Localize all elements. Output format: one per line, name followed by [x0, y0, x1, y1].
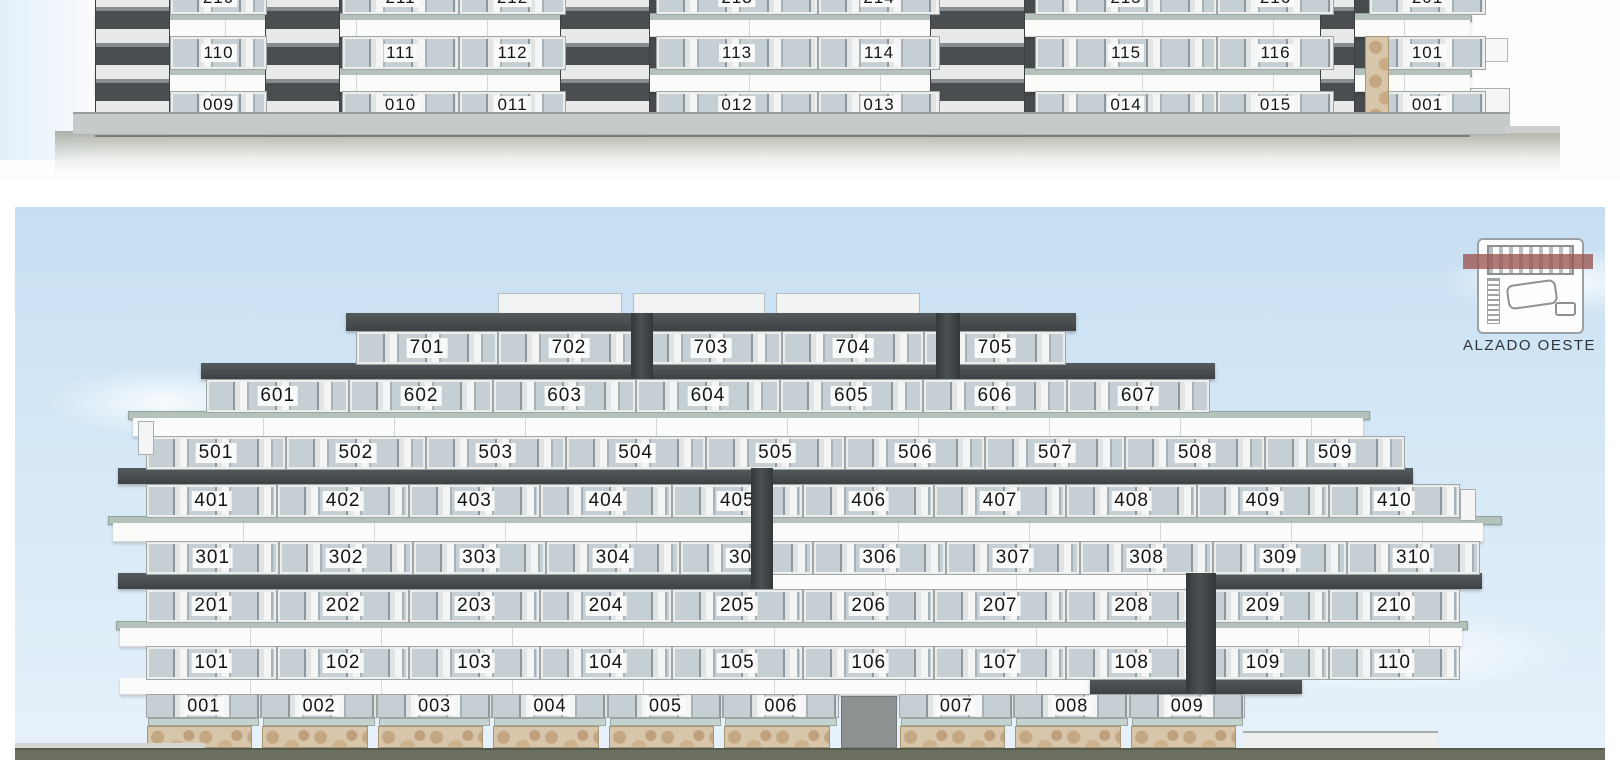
unit-cell: 111: [342, 36, 459, 70]
unit-cell: 114: [818, 36, 940, 70]
unit-label: 701: [407, 338, 448, 358]
chimney: [138, 421, 154, 455]
unit-label: 601: [257, 386, 298, 406]
unit-label: 105: [717, 653, 758, 673]
west-floor-row-1: 101102103104105106107108109110: [146, 646, 1460, 678]
facade-spacer: [267, 36, 342, 68]
unit-label: 404: [586, 491, 627, 511]
unit-cell: 206: [803, 589, 934, 623]
unit-label: 403: [454, 491, 495, 511]
glass-railing: [901, 718, 1012, 726]
ground-floor-window: 009: [1130, 694, 1245, 718]
unit-label: 107: [980, 653, 1021, 673]
unit-label: 104: [586, 653, 627, 673]
unit-cell: 212: [459, 0, 566, 15]
ground-floor-window: 001: [146, 694, 261, 718]
west-floor-row-4: 401402403404405406407408409410: [146, 484, 1460, 516]
unit-cell: 112: [459, 36, 566, 70]
unit-cell: 116: [1217, 36, 1334, 70]
unit-cell: 504: [566, 436, 706, 470]
unit-label: 503: [475, 443, 516, 463]
unit-cell: 406: [803, 484, 934, 518]
unit-label: 606: [974, 386, 1015, 406]
unit-label: 116: [1257, 44, 1293, 62]
unit-cell: 502: [286, 436, 426, 470]
unit-cell: 702: [498, 331, 640, 365]
vertical-pier: [936, 313, 960, 379]
stone-terrace-wall: [493, 726, 598, 748]
unit-cell: 503: [426, 436, 566, 470]
facade-spacer: [566, 36, 656, 68]
key-plan-highlight-band: [1463, 254, 1593, 269]
unit-cell: 214: [818, 0, 940, 15]
unit-cell: 408: [1066, 484, 1197, 518]
unit-cell: 402: [277, 484, 408, 518]
unit-cell: 201: [1369, 0, 1486, 15]
stone-terrace-wall: [378, 726, 483, 748]
unit-label: 210: [200, 0, 237, 7]
unit-cell: 006: [723, 694, 838, 748]
unit-cell: 310: [1347, 541, 1480, 575]
unit-label: 207: [980, 596, 1021, 616]
unit-cell: 008: [1014, 694, 1129, 748]
rooftop-structure: [633, 293, 765, 315]
unit-cell: 401: [146, 484, 277, 518]
stone-terrace-wall: [1015, 726, 1120, 748]
unit-cell: 002: [261, 694, 376, 748]
unit-cell: 602: [349, 379, 492, 413]
unit-cell: 507: [985, 436, 1125, 470]
unit-cell: 604: [636, 379, 779, 413]
stone-terrace-wall: [900, 726, 1005, 748]
upper-floor-row-2: 210211212213214215216201: [95, 0, 1470, 13]
unit-cell: 007: [899, 694, 1014, 748]
unit-label: 306: [859, 548, 900, 568]
vertical-pier: [631, 313, 653, 379]
unit-cell: 101: [146, 646, 277, 680]
unit-label: 308: [1126, 548, 1167, 568]
unit-label: 216: [1257, 0, 1294, 7]
unit-label: 202: [323, 596, 364, 616]
dark-band: [1190, 573, 1482, 589]
unit-cell: 213: [656, 0, 818, 15]
unit-label: 307: [993, 548, 1034, 568]
unit-label: 605: [831, 386, 872, 406]
dark-band: [118, 573, 755, 589]
unit-label: 110: [200, 44, 236, 62]
unit-cell: 309: [1213, 541, 1346, 575]
unit-label: 109: [1243, 653, 1284, 673]
unit-cell: 410: [1329, 484, 1460, 518]
unit-label: 108: [1111, 653, 1152, 673]
ground-floor-window: 003: [377, 694, 492, 718]
unit-cell: 210: [170, 0, 267, 15]
stone-terrace-wall: [1131, 726, 1236, 748]
chimney: [1460, 489, 1476, 521]
unit-label: 501: [196, 443, 237, 463]
balcony-fascia: [755, 573, 1190, 590]
unit-label: 407: [980, 491, 1021, 511]
unit-cell: 701: [356, 331, 498, 365]
balcony-fascia: [133, 418, 1363, 437]
key-plan-car: [1555, 302, 1576, 316]
unit-cell: 509: [1265, 436, 1405, 470]
unit-cell: 110: [1329, 646, 1460, 680]
building-entrance: [841, 696, 897, 748]
unit-cell: 110: [170, 36, 267, 70]
unit-label: 506: [895, 443, 936, 463]
glass-railing: [1132, 718, 1243, 726]
stone-terrace-wall: [262, 726, 367, 748]
unit-label: 702: [549, 338, 590, 358]
unit-label: 215: [1107, 0, 1144, 7]
unit-cell: 113: [656, 36, 818, 70]
ground-shading: [55, 131, 1560, 175]
unit-label: 006: [761, 697, 800, 716]
unit-cell: 108: [1066, 646, 1197, 680]
unit-cell: 105: [672, 646, 803, 680]
unit-label: 504: [615, 443, 656, 463]
glass-railing: [610, 718, 721, 726]
unit-cell: 505: [706, 436, 846, 470]
unit-label: 001: [184, 697, 223, 716]
unit-cell: 201: [146, 589, 277, 623]
unit-cell: 703: [640, 331, 782, 365]
unit-label: 103: [454, 653, 495, 673]
unit-cell: 407: [934, 484, 1065, 518]
unit-cell: 103: [409, 646, 540, 680]
ground-floor-window: 005: [608, 694, 723, 718]
unit-cell: 606: [923, 379, 1066, 413]
unit-cell: 302: [279, 541, 412, 575]
unit-cell: 216: [1217, 0, 1334, 15]
unit-label: 509: [1315, 443, 1356, 463]
unit-cell: 208: [1066, 589, 1197, 623]
unit-label: 410: [1374, 491, 1415, 511]
unit-label: 211: [382, 0, 418, 7]
unit-label: 113: [719, 44, 755, 62]
unit-label: 304: [593, 548, 634, 568]
balcony-fascia: [120, 678, 1090, 695]
upper-floor-row-1: 110111112113114115116101: [95, 36, 1470, 68]
unit-cell: 307: [946, 541, 1079, 575]
unit-cell: 704: [782, 331, 924, 365]
facade-spacer: [1334, 36, 1369, 68]
unit-label: 002: [300, 697, 339, 716]
unit-label: 004: [531, 697, 570, 716]
unit-label: 210: [1374, 596, 1415, 616]
unit-cell: 305: [680, 541, 813, 575]
unit-label: 201: [191, 596, 232, 616]
unit-cell: 306: [813, 541, 946, 575]
unit-label: 209: [1243, 596, 1284, 616]
unit-label: 201: [1409, 0, 1446, 7]
unit-label: 115: [1108, 44, 1144, 62]
west-floor-row-3: 301302303304305306307308309310: [146, 541, 1480, 573]
unit-cell: 308: [1080, 541, 1213, 575]
west-floor-row-5: 501502503504505506507508509: [146, 436, 1405, 468]
unit-label: 607: [1118, 386, 1159, 406]
unit-cell: 215: [1035, 0, 1217, 15]
unit-label: 102: [323, 653, 364, 673]
unit-cell: 106: [803, 646, 934, 680]
unit-label: 401: [191, 491, 232, 511]
glass-railing: [148, 718, 259, 726]
unit-label: 302: [326, 548, 367, 568]
unit-label: 106: [848, 653, 889, 673]
glass-railing: [725, 718, 836, 726]
ground-floor-window: 002: [261, 694, 376, 718]
ground-floor-window: 004: [492, 694, 607, 718]
upper-elevation-panel: 210211212213214215216201 110111112113114…: [0, 0, 1620, 180]
ground-band: [15, 748, 1605, 760]
west-building-facade: 701702703704705 601602603604605606607 50…: [108, 293, 1503, 750]
west-elevation-panel: 701702703704705 601602603604605606607 50…: [15, 207, 1605, 760]
unit-label: 409: [1243, 491, 1284, 511]
unit-cell: 303: [413, 541, 546, 575]
unit-label: 602: [401, 386, 442, 406]
key-plan-stairs: [1487, 278, 1500, 324]
unit-cell: 109: [1197, 646, 1328, 680]
unit-cell: 003: [377, 694, 492, 748]
facade-spacer: [267, 0, 342, 13]
unit-label: 502: [335, 443, 376, 463]
unit-label: 301: [192, 548, 233, 568]
unit-label: 508: [1175, 443, 1216, 463]
unit-cell: 607: [1067, 379, 1210, 413]
unit-label: 212: [494, 0, 531, 7]
unit-label: 507: [1035, 443, 1076, 463]
unit-label: 009: [1168, 697, 1207, 716]
west-floor-row-2: 201202203204205206207208209210: [146, 589, 1460, 621]
facade-spacer: [95, 0, 170, 13]
unit-cell: 004: [492, 694, 607, 748]
unit-label: 505: [755, 443, 796, 463]
unit-cell: 405: [672, 484, 803, 518]
facade-spacer: [566, 0, 656, 13]
rooftop-structure: [498, 293, 622, 315]
unit-cell: 209: [1197, 589, 1328, 623]
unit-cell: 204: [540, 589, 671, 623]
unit-label: 003: [415, 697, 454, 716]
unit-label: 604: [688, 386, 729, 406]
unit-cell: 207: [934, 589, 1065, 623]
rooftop-structure: [776, 293, 920, 315]
balcony-fascia: [113, 523, 1483, 542]
unit-label: 110: [1375, 653, 1414, 673]
unit-label: 408: [1111, 491, 1152, 511]
unit-cell: 210: [1329, 589, 1460, 623]
balcony-fascia: [120, 628, 1462, 647]
unit-cell: 009: [1130, 694, 1245, 748]
unit-cell: 508: [1125, 436, 1265, 470]
unit-cell: 403: [409, 484, 540, 518]
unit-cell: 601: [206, 379, 349, 413]
ground-platform-step: [1505, 126, 1560, 133]
ground-platform: [73, 112, 1510, 135]
unit-cell: 506: [845, 436, 985, 470]
dark-band: [201, 363, 1215, 379]
unit-cell: 205: [672, 589, 803, 623]
unit-cell: 404: [540, 484, 671, 518]
stone-terrace-wall: [724, 726, 829, 748]
ground-floor-window: 006: [723, 694, 838, 718]
unit-label: 005: [646, 697, 685, 716]
unit-label: 101: [191, 653, 232, 673]
unit-cell: 409: [1197, 484, 1328, 518]
unit-label: 114: [861, 44, 897, 62]
unit-label: 205: [717, 596, 758, 616]
unit-cell: 005: [608, 694, 723, 748]
facade-spacer: [1334, 0, 1369, 13]
unit-label: 203: [454, 596, 495, 616]
unit-cell: 605: [780, 379, 923, 413]
unit-label: 214: [860, 0, 897, 7]
key-plan-icon: [1477, 238, 1584, 334]
facade-spacer: [940, 0, 1035, 13]
glass-railing: [494, 718, 605, 726]
unit-label: 204: [586, 596, 627, 616]
unit-label: 406: [848, 491, 889, 511]
unit-cell: 102: [277, 646, 408, 680]
unit-label: 007: [937, 697, 976, 716]
unit-label: 310: [1393, 548, 1434, 568]
unit-label: 303: [459, 548, 500, 568]
unit-label: 008: [1052, 697, 1091, 716]
glass-railing: [379, 718, 490, 726]
key-plan-pool: [1506, 279, 1559, 311]
unit-label: 111: [383, 44, 418, 62]
unit-label: 703: [691, 338, 732, 358]
unit-cell: 001: [146, 694, 261, 748]
unit-cell: 107: [934, 646, 1065, 680]
unit-label: 705: [975, 338, 1016, 358]
facade-spacer: [95, 36, 170, 68]
facade-spacer: [940, 36, 1035, 68]
unit-cell: 603: [493, 379, 636, 413]
unit-label: 603: [544, 386, 585, 406]
unit-label: 206: [848, 596, 889, 616]
unit-label: 402: [323, 491, 364, 511]
unit-label: 213: [718, 0, 755, 7]
stone-terrace-wall: [609, 726, 714, 748]
vertical-pier: [1186, 573, 1216, 694]
unit-cell: 211: [342, 0, 459, 15]
west-floor-row-0: 001002003004005006007008009: [146, 694, 1245, 748]
unit-label: 112: [494, 44, 530, 62]
ground-floor-window: 007: [899, 694, 1014, 718]
unit-label: 704: [833, 338, 874, 358]
glass-railing: [263, 718, 374, 726]
unit-cell: 104: [540, 646, 671, 680]
unit-cell: 301: [146, 541, 279, 575]
elevation-title: ALZADO OESTE: [1447, 337, 1605, 354]
vertical-pier: [751, 468, 773, 589]
unit-cell: 203: [409, 589, 540, 623]
unit-label: 208: [1111, 596, 1152, 616]
unit-cell: 501: [146, 436, 286, 470]
unit-cell: 115: [1035, 36, 1217, 70]
glass-railing: [1016, 718, 1127, 726]
ground-floor-window: 008: [1014, 694, 1129, 718]
unit-label: 101: [1409, 44, 1446, 62]
west-floor-row-6: 601602603604605606607: [206, 379, 1210, 411]
unit-cell: 304: [546, 541, 679, 575]
roof-parapet-band: [346, 313, 1076, 331]
unit-label: 309: [1260, 548, 1301, 568]
unit-cell: 202: [277, 589, 408, 623]
